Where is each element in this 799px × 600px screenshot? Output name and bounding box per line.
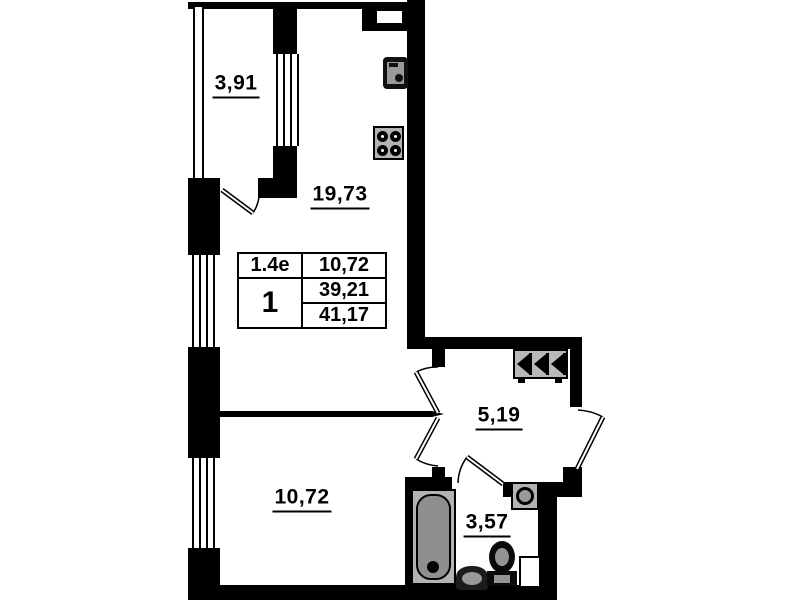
kitchen-area-label: 19,73 xyxy=(310,183,369,210)
washing-machine-icon xyxy=(511,482,539,510)
bedroom-door-arc xyxy=(416,459,438,466)
floor-plan: 3,91 19,73 10,72 5,19 3,57 1.4e 10,72 1 … xyxy=(0,0,799,600)
entry-door-leaf xyxy=(577,417,603,469)
wardrobe-foot-left xyxy=(518,379,525,383)
door-swings-overlay xyxy=(0,0,799,600)
toilet-icon xyxy=(487,541,517,586)
wardrobe-foot-right xyxy=(555,379,562,383)
entry-door-arc xyxy=(578,410,603,417)
bedroom-top-wall xyxy=(218,411,432,417)
left-wall-block-2 xyxy=(188,347,220,458)
balcony-area-label: 3,91 xyxy=(213,72,260,99)
bathtub-icon xyxy=(411,489,456,585)
kitchen-door-leaf xyxy=(416,372,438,413)
right-wall-upper xyxy=(570,349,582,407)
wardrobe-icon xyxy=(513,349,568,379)
area-no-balcony-cell: 39,21 xyxy=(302,278,386,303)
bathroom-door-leaf xyxy=(467,457,503,484)
bathroom-area-label: 3,57 xyxy=(464,511,511,538)
kitchen-right-wall xyxy=(407,0,425,349)
total-area-cell: 41,17 xyxy=(302,303,386,328)
pier-bottom-ell xyxy=(258,178,297,198)
pier-top-block xyxy=(273,2,297,54)
bottom-wall xyxy=(188,585,557,600)
balcony-door-arc xyxy=(253,197,259,213)
bedroom-area-label: 10,72 xyxy=(272,486,331,513)
stove-icon xyxy=(373,126,404,160)
balcony-door-leaf xyxy=(222,190,253,213)
unit-type-cell: 1.4e xyxy=(238,253,302,278)
left-wall-block-1 xyxy=(188,178,220,255)
wall-top xyxy=(188,2,425,9)
bathroom-door-arc xyxy=(458,457,467,483)
balcony-window xyxy=(276,54,299,146)
kitchen-door-arc xyxy=(416,367,438,372)
duct-shaft xyxy=(377,11,402,23)
living-area-cell: 10,72 xyxy=(302,253,386,278)
bathroom-shaft xyxy=(519,556,541,588)
bedroom-door-leaf xyxy=(416,418,438,459)
hallway-area-label: 5,19 xyxy=(476,404,523,431)
hallway-top-wall xyxy=(425,337,582,349)
kitchen-sink-icon xyxy=(383,57,408,89)
washbasin-icon xyxy=(456,566,488,590)
balcony-left-wall xyxy=(193,7,204,180)
left-window-1 xyxy=(192,255,216,347)
bedroom-wall-tip xyxy=(432,411,444,417)
unit-spec-table: 1.4e 10,72 1 39,21 41,17 xyxy=(237,252,387,329)
room-count-cell: 1 xyxy=(238,278,302,328)
left-window-2 xyxy=(192,458,216,548)
hall-stub-upper xyxy=(432,349,445,367)
